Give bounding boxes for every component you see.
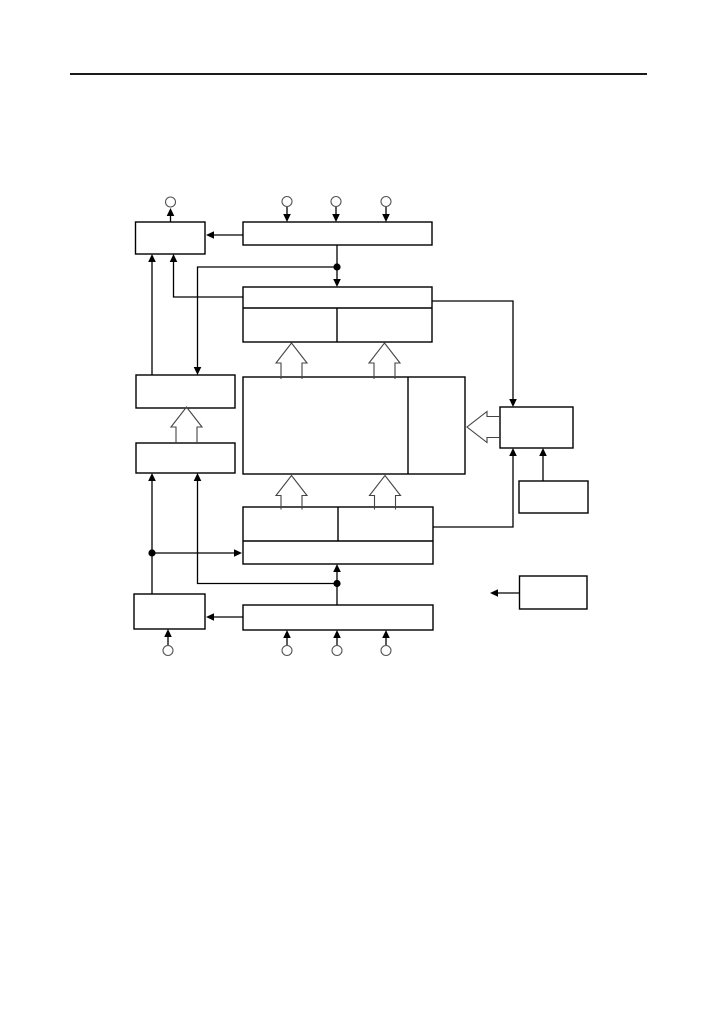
pin-top-1 [166,197,176,207]
arrow-junction-bottom-to-lowerleft-arrowhead [194,473,202,481]
arrow-bottomwide-to-lowergroup-arrowhead [333,564,341,572]
pin-top-4 [381,197,391,207]
right-box [500,407,573,448]
pin-bottom-2 [282,646,292,656]
pin-bottom-1 [163,646,173,656]
arrow-junction-left-to-lowergroup-arrowhead [234,549,242,557]
bottom-wide-box [243,605,433,630]
top-left-box [136,222,206,254]
lower-left-box [136,443,235,473]
bus-arrow-topgroup-left [276,343,307,379]
pin-bottom-3 [332,646,342,656]
bus-arrow-left-stack [171,407,202,444]
junction-bottom [333,580,340,587]
bottom-left-box [134,594,205,629]
pin-top-2 [282,197,292,207]
arrow-pin4-to-topwide-arrowhead [382,214,390,222]
arrow-pin2-to-topwide-arrowhead [283,214,291,222]
block-diagram-figure [0,0,717,1013]
arrow-bottomleft-to-lowerleft-arrowhead [148,473,156,481]
arrow-pin5-to-bottomleft-arrowhead [164,629,172,637]
central-box [243,377,465,474]
arrow-pin6-to-bottomwide-arrowhead [283,630,291,638]
arrow-topwide-to-topleft-arrowhead [206,231,214,239]
arrow-topgroup-to-topleft-arrowhead [170,254,178,262]
arrow-upperleft-to-topleft-arrowhead [148,254,156,262]
pin-bottom-4 [381,646,391,656]
top-wide-box [243,222,432,245]
arrow-pin8-to-bottomwide-arrowhead [382,630,390,638]
bus-arrow-central-right [370,476,401,510]
arrow-junction-top-to-upperleft-arrowhead [194,367,202,375]
upper-left-box [136,375,235,408]
bus-arrow-topgroup-right [369,343,400,379]
arrow-smallright-to-rightbox-arrowhead [539,448,547,456]
arrow-pin3-to-topwide-arrowhead [332,214,340,222]
arrow-topwide-to-topgroup-arrowhead [333,279,341,287]
bus-arrow-central-left [276,476,307,510]
bus-arrow-right-to-central [467,412,501,443]
arrow-bottomwide-to-bottomleft-arrowhead [206,613,214,621]
arrow-standalone-out-arrowhead [490,589,498,597]
small-right-box [519,481,588,513]
arrow-topgroup-to-rightbox-arrowhead [509,399,517,407]
pin-top-3 [331,197,341,207]
arrow-lowergroup-to-rightbox-arrowhead [509,448,517,456]
junction-left [148,549,155,556]
standalone-box [520,576,588,609]
arrow-pin7-to-bottomwide-arrowhead [333,630,341,638]
document-page [0,0,717,1013]
arrow-topleft-to-pin1-arrowhead [167,208,175,216]
junction-top [333,263,340,270]
